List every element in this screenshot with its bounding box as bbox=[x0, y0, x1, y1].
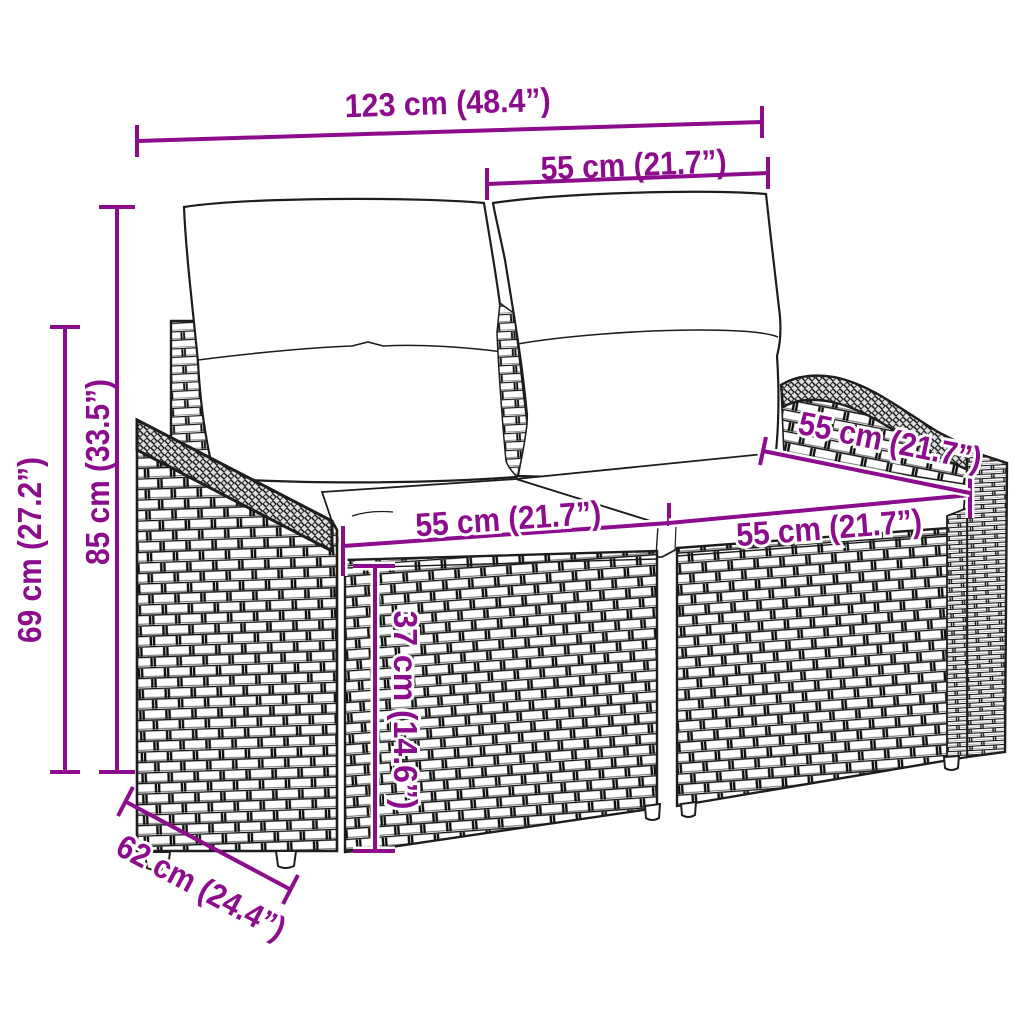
svg-text:85 cm (33.5”): 85 cm (33.5”) bbox=[79, 379, 116, 565]
svg-text:37 cm (14.6”): 37 cm (14.6”) bbox=[387, 611, 424, 810]
svg-text:55 cm (21.7”): 55 cm (21.7”) bbox=[540, 142, 727, 186]
svg-text:123 cm (48.4”): 123 cm (48.4”) bbox=[344, 81, 551, 124]
svg-text:69 cm (27.2”): 69 cm (27.2”) bbox=[11, 457, 48, 643]
